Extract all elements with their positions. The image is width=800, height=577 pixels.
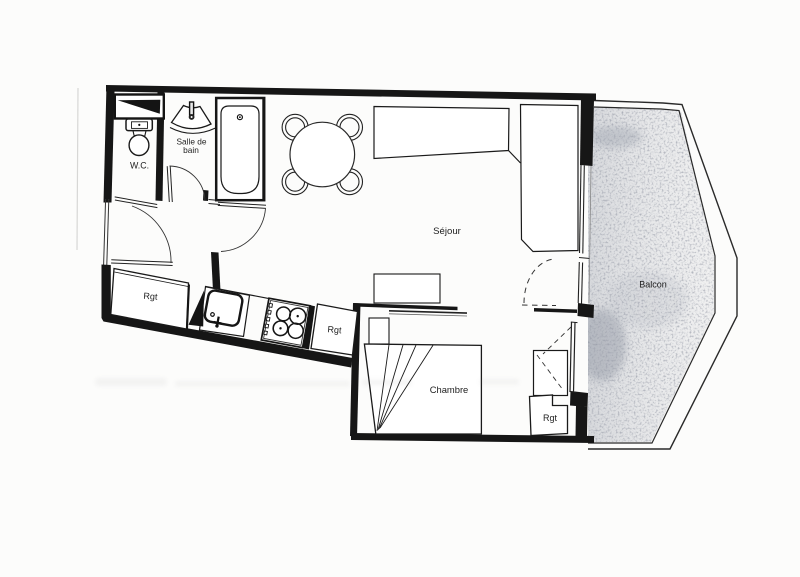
svg-text:bain: bain	[183, 145, 199, 155]
svg-text:Séjour: Séjour	[433, 226, 462, 237]
svg-text:W.C.: W.C.	[130, 160, 149, 170]
svg-text:Balcon: Balcon	[639, 280, 667, 290]
svg-text:Rgt: Rgt	[327, 324, 342, 335]
svg-text:Chambre: Chambre	[430, 384, 469, 395]
svg-text:Rgt: Rgt	[543, 413, 558, 423]
svg-text:Rgt: Rgt	[143, 291, 158, 302]
